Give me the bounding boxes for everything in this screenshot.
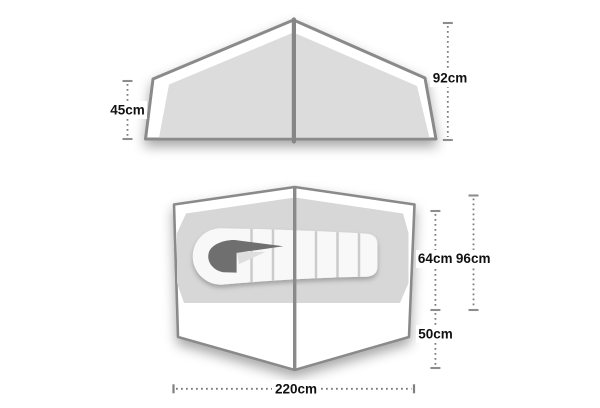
- svg-text:45cm: 45cm: [110, 103, 145, 118]
- svg-text:64cm: 64cm: [418, 251, 453, 266]
- svg-text:96cm: 96cm: [456, 251, 491, 266]
- svg-text:92cm: 92cm: [433, 71, 468, 86]
- svg-text:220cm: 220cm: [275, 381, 317, 396]
- svg-text:50cm: 50cm: [418, 327, 453, 342]
